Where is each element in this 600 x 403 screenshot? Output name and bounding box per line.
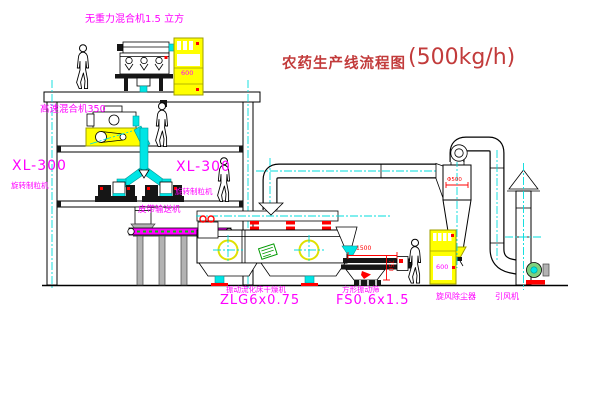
vibrating-sieve [341,252,415,286]
label-belt-conveyor: 皮带输送机 [138,206,181,215]
worker-second-floor [156,103,168,147]
worker-roof [77,45,89,89]
control-cabinet-right [430,230,456,284]
label-cyclone: 旋风除尘器 [436,293,476,301]
dim-cyclone-diameter: Φ500 [447,178,462,184]
dim-sieve-height: 750 [387,260,393,271]
label-granulator-right-model: XL-300 [176,160,231,174]
granulator-left [95,182,137,202]
induced-draft-fan [526,263,549,285]
control-cabinet-top [174,38,203,95]
label-high-speed-mixer: 高速混合机350 [40,105,106,115]
label-granulator-left-model: XL-300 [12,159,67,173]
worker-ground [409,239,421,283]
label-sieve-model: FS0.6x1.5 [336,294,410,307]
cabinet-top-display: 600 [181,70,193,77]
cabinet-right-display: 600 [436,264,448,271]
label-granulator-left-name: 旋转制粒机 [11,182,49,190]
label-gravity-mixer: 无重力混合机1.5 立方 [85,15,184,25]
dim-sieve-length: 1500 [356,246,371,252]
title-capacity: (500kg/h) [408,45,515,70]
title-text: 农药生产线流程图 [282,45,406,73]
exhaust-duct [256,158,450,212]
label-granulator-right-name: 旋转制粒机 [175,188,213,196]
gravity-free-mixer [115,42,177,92]
pesticide-production-line-drawing: 农药生产线流程图 (500kg/h) 无重力混合机1.5 立方 高速混合机350… [0,0,600,403]
label-dryer-model: ZLG6x0.75 [220,294,300,307]
label-fan: 引风机 [495,293,519,301]
drawing-title: 农药生产线流程图 (500kg/h) [282,45,515,73]
